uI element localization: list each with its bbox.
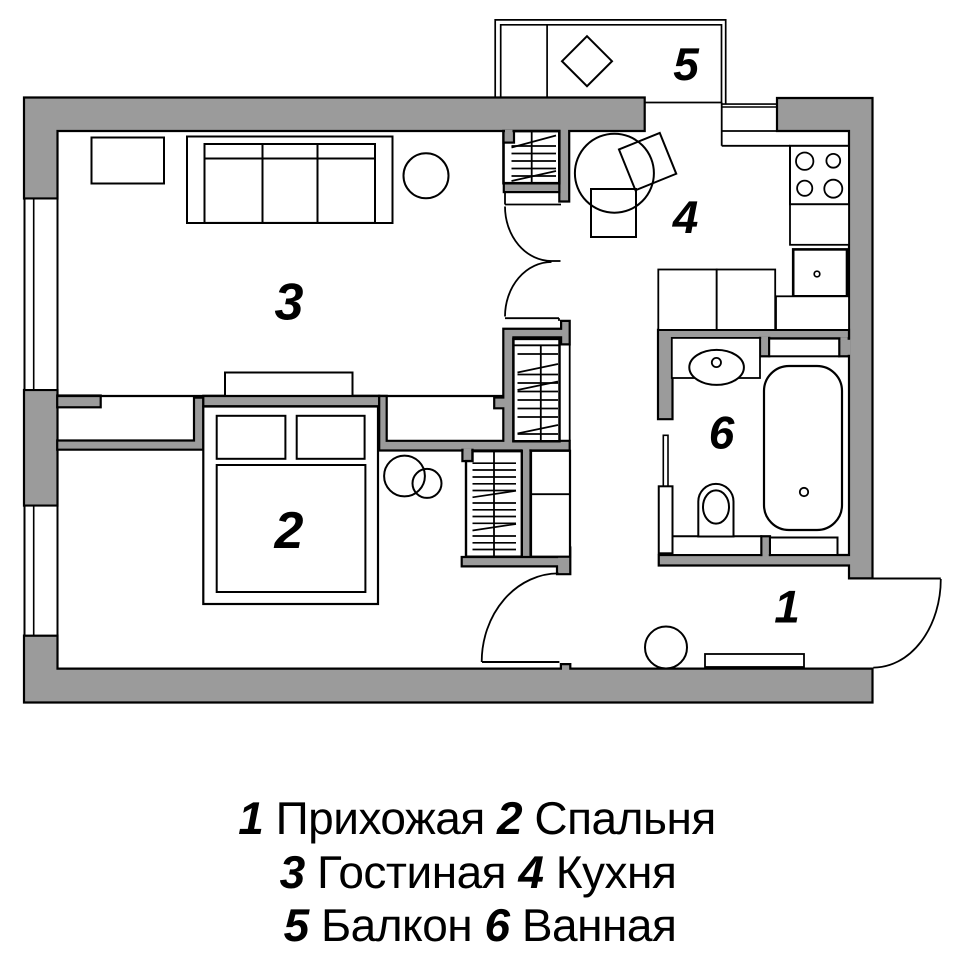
svg-text:5: 5 [673, 38, 700, 90]
svg-text:5 Балкон 6 Ванная: 5 Балкон 6 Ванная [284, 899, 677, 951]
svg-text:2: 2 [274, 502, 304, 560]
svg-text:1: 1 [774, 581, 800, 633]
svg-text:1 Прихожая 2 Спальня: 1 Прихожая 2 Спальня [238, 792, 716, 844]
svg-text:4: 4 [672, 191, 699, 243]
svg-text:3 Гостиная 4 Кухня: 3 Гостиная 4 Кухня [280, 846, 677, 898]
svg-text:3: 3 [275, 274, 304, 332]
svg-text:6: 6 [709, 407, 735, 459]
